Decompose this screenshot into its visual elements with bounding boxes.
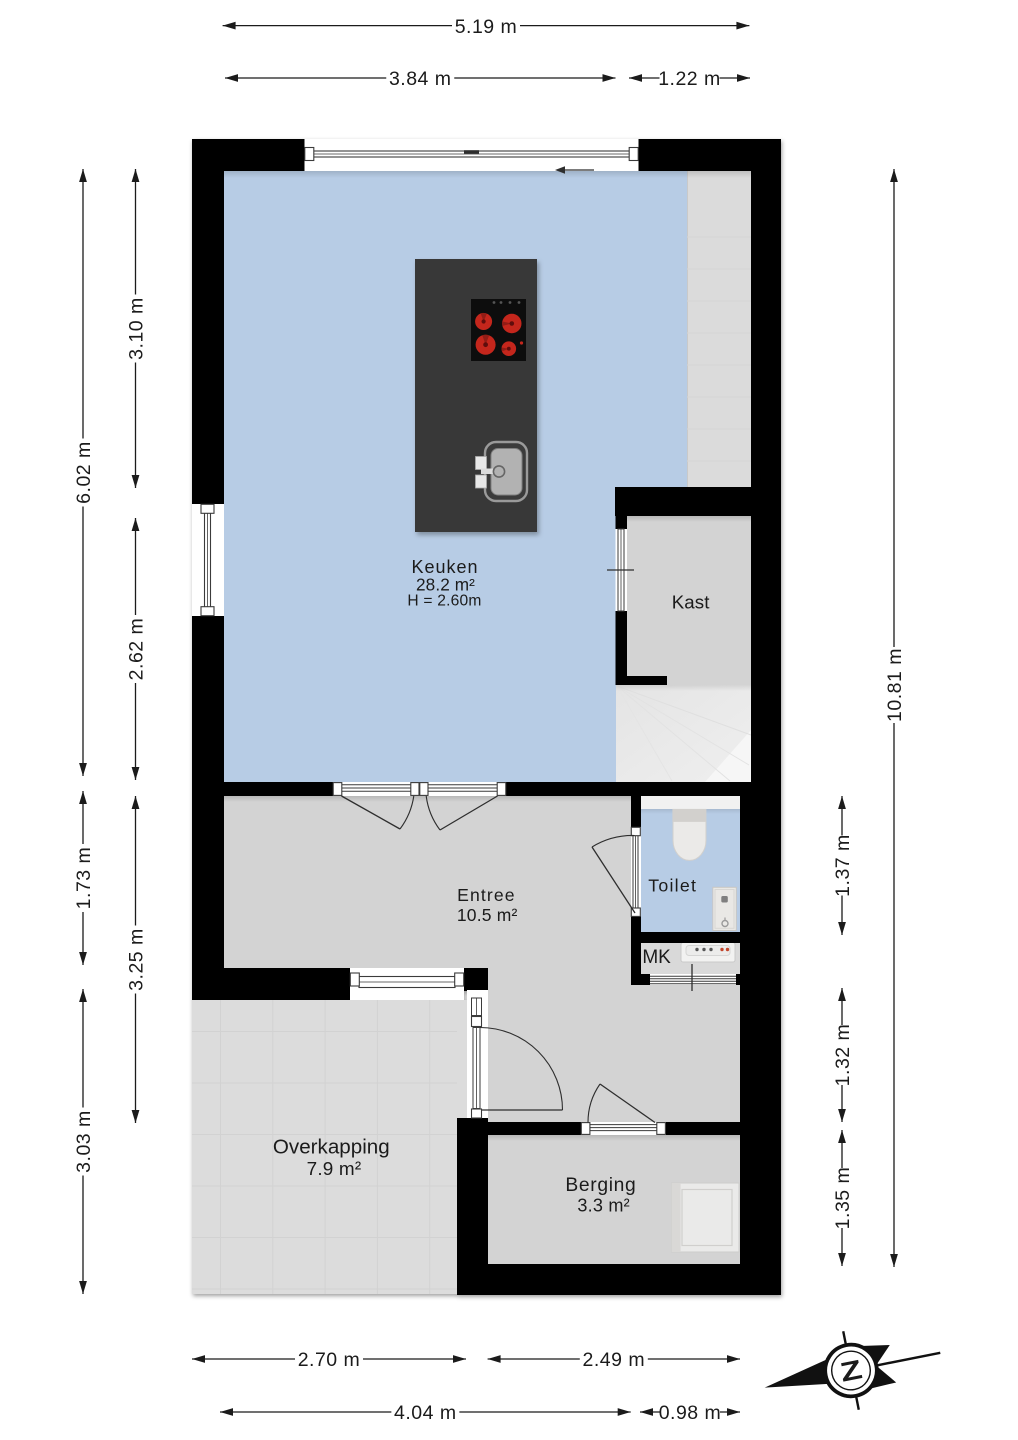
svg-text:3.10 m: 3.10 m bbox=[126, 297, 148, 360]
svg-text:3.03 m: 3.03 m bbox=[73, 1110, 95, 1173]
svg-text:10.81 m: 10.81 m bbox=[884, 648, 906, 722]
svg-text:7.9 m²: 7.9 m² bbox=[307, 1159, 362, 1180]
svg-text:1.37 m: 1.37 m bbox=[832, 834, 854, 897]
svg-text:Entree: Entree bbox=[457, 885, 515, 905]
svg-text:4.04 m: 4.04 m bbox=[394, 1402, 457, 1424]
svg-text:1.73 m: 1.73 m bbox=[73, 847, 95, 910]
svg-text:3.84 m: 3.84 m bbox=[389, 68, 452, 90]
svg-text:10.5 m²: 10.5 m² bbox=[457, 905, 518, 925]
svg-text:1.35 m: 1.35 m bbox=[832, 1167, 854, 1230]
svg-text:2.49 m: 2.49 m bbox=[582, 1349, 645, 1371]
svg-text:3.3 m²: 3.3 m² bbox=[577, 1195, 629, 1215]
svg-text:Toilet: Toilet bbox=[648, 876, 697, 896]
svg-text:2.62 m: 2.62 m bbox=[126, 618, 148, 681]
svg-text:28.2 m²: 28.2 m² bbox=[416, 574, 475, 594]
svg-text:6.02 m: 6.02 m bbox=[73, 441, 95, 504]
svg-text:1.22 m: 1.22 m bbox=[658, 68, 721, 90]
svg-text:1.32 m: 1.32 m bbox=[832, 1024, 854, 1087]
svg-text:3.25 m: 3.25 m bbox=[126, 928, 148, 991]
svg-text:5.19 m: 5.19 m bbox=[455, 16, 518, 38]
svg-text:Overkapping: Overkapping bbox=[273, 1136, 390, 1159]
svg-text:0.98 m: 0.98 m bbox=[659, 1402, 722, 1424]
svg-text:MK: MK bbox=[642, 947, 671, 968]
svg-text:H = 2.60m: H = 2.60m bbox=[407, 593, 481, 610]
svg-text:Berging: Berging bbox=[565, 1175, 636, 1196]
svg-text:2.70 m: 2.70 m bbox=[298, 1349, 361, 1371]
svg-text:Kast: Kast bbox=[672, 591, 711, 612]
